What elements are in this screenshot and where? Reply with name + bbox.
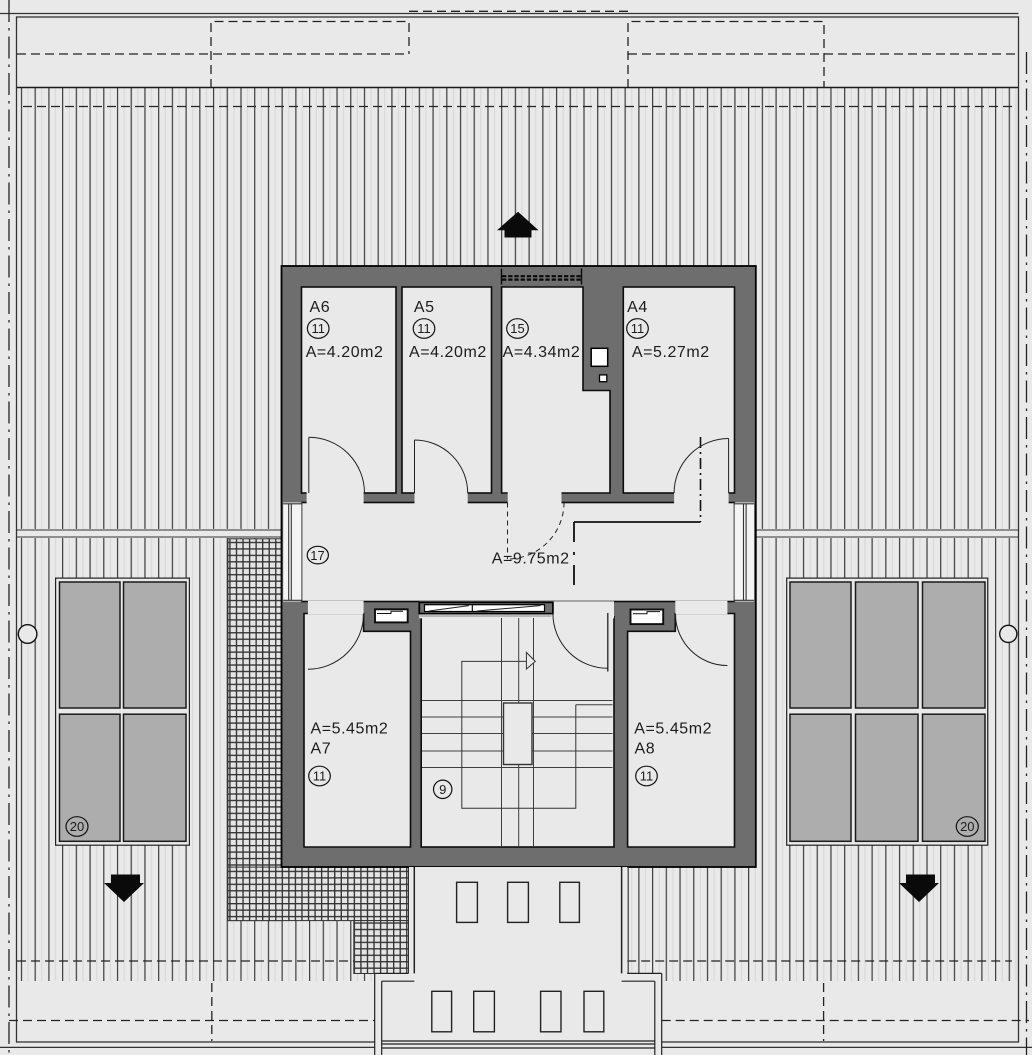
svg-text:11: 11 bbox=[311, 321, 325, 336]
svg-text:A=9.75m2: A=9.75m2 bbox=[492, 551, 570, 568]
svg-text:A=4.20m2: A=4.20m2 bbox=[409, 344, 487, 361]
svg-text:15: 15 bbox=[510, 321, 524, 336]
svg-text:9: 9 bbox=[439, 782, 446, 797]
svg-text:20: 20 bbox=[960, 819, 974, 834]
svg-text:A6: A6 bbox=[310, 299, 331, 316]
svg-text:A8: A8 bbox=[635, 741, 656, 758]
svg-text:A=4.20m2: A=4.20m2 bbox=[306, 344, 384, 361]
svg-text:11: 11 bbox=[313, 769, 327, 784]
svg-text:A=5.45m2: A=5.45m2 bbox=[634, 721, 712, 738]
svg-text:11: 11 bbox=[417, 321, 431, 336]
svg-text:A4: A4 bbox=[627, 299, 648, 316]
svg-text:11: 11 bbox=[640, 769, 654, 784]
svg-text:A=5.27m2: A=5.27m2 bbox=[632, 344, 710, 361]
svg-text:20: 20 bbox=[70, 819, 84, 834]
svg-text:A5: A5 bbox=[414, 299, 435, 316]
svg-text:A=4.34m2: A=4.34m2 bbox=[503, 344, 581, 361]
svg-text:11: 11 bbox=[631, 321, 645, 336]
svg-text:A=5.45m2: A=5.45m2 bbox=[311, 721, 389, 738]
svg-text:A7: A7 bbox=[311, 741, 332, 758]
svg-text:17: 17 bbox=[310, 548, 324, 563]
